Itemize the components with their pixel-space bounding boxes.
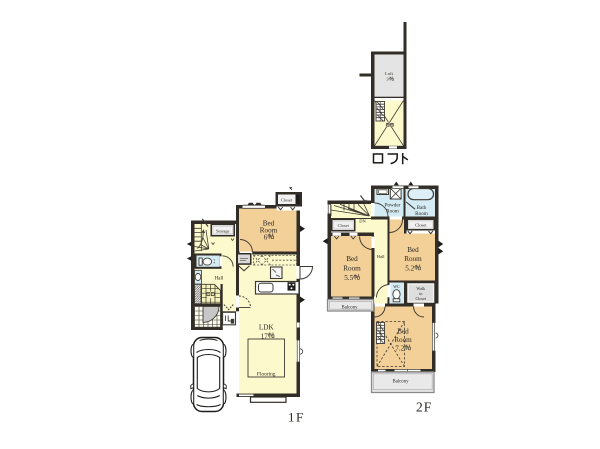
- svg-text:LDK: LDK: [259, 324, 275, 332]
- svg-text:Flooring: Flooring: [257, 372, 276, 378]
- svg-text:Closet: Closet: [281, 198, 293, 203]
- svg-text:Balcony: Balcony: [342, 305, 359, 310]
- svg-text:Hall: Hall: [377, 254, 385, 259]
- svg-text:Closet: Closet: [415, 223, 427, 228]
- svg-text:6: 6: [264, 233, 268, 241]
- svg-text:Balcony: Balcony: [393, 380, 410, 385]
- svg-text:Room: Room: [386, 209, 399, 215]
- svg-text:Room: Room: [343, 265, 361, 273]
- svg-text:7.2: 7.2: [395, 345, 404, 353]
- svg-text:Storage: Storage: [216, 228, 229, 233]
- svg-text:Bed: Bed: [397, 328, 409, 336]
- svg-text:1F: 1F: [288, 410, 305, 425]
- svg-text:5.5: 5.5: [344, 274, 353, 282]
- svg-text:Bed: Bed: [346, 255, 358, 263]
- svg-text:Room: Room: [394, 336, 412, 344]
- svg-text:Bed: Bed: [407, 246, 419, 254]
- svg-text:Closet: Closet: [338, 223, 350, 228]
- svg-text:Hall: Hall: [215, 276, 224, 281]
- svg-text:Loft: Loft: [385, 71, 394, 76]
- svg-text:DN: DN: [359, 218, 366, 223]
- svg-text:Room: Room: [260, 226, 278, 234]
- svg-text:Room: Room: [404, 255, 422, 263]
- svg-text:5.2: 5.2: [405, 265, 414, 273]
- svg-text:Room: Room: [415, 211, 428, 217]
- svg-text:2F: 2F: [416, 400, 432, 415]
- svg-text:WC: WC: [393, 284, 400, 289]
- svg-text:Closet: Closet: [415, 296, 427, 301]
